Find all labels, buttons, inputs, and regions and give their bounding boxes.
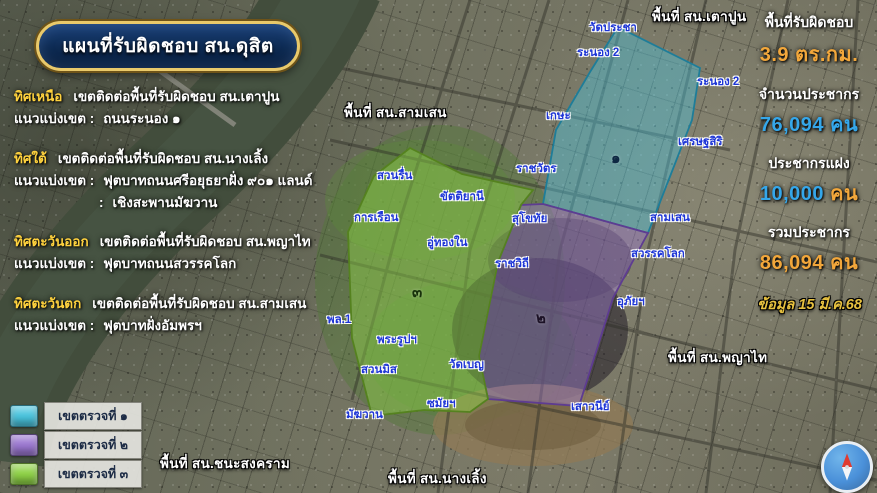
info-block-south: ทิศใต้เขตติดต่อพื้นที่รับผิดชอบ สน.นางเล… [14,148,312,214]
boundary-value: ฟุตบาทถนนศรีอยุธยาฝั่ง ๙๐๑ แลนด์ [103,173,312,188]
legend-label-3: เขตตรวจที่ ๓ [44,460,142,488]
direction-desc: เขตติดต่อพื้นที่รับผิดชอบ สน.เตาปูน [73,89,279,104]
direction-label: ทิศตะวันออก [14,234,89,249]
stat-unit: คน [824,183,858,205]
legend-row-1: เขตตรวจที่ ๑ [10,404,142,428]
direction-label: ทิศใต้ [14,151,47,166]
legend-label-2: เขตตรวจที่ ๒ [44,431,142,459]
data-date: ข้อมูล 15 มี.ค.68 [734,293,877,316]
stat-value-area: 3.9 ตร.กม. [746,38,872,70]
legend-row-3: เขตตรวจที่ ๓ [10,462,142,486]
info-block-east: ทิศตะวันออกเขตติดต่อพื้นที่รับผิดชอบ สน.… [14,231,311,275]
legend-label-1: เขตตรวจที่ ๑ [44,402,142,430]
boundary-label-2: : [14,192,104,214]
legend-row-2: เขตตรวจที่ ๒ [10,433,142,457]
boundary-label: แนวแบ่งเขต : [14,256,94,271]
title-banner: แผนที่รับผิดชอบ สน.ดุสิต [36,21,300,71]
boundary-value: ฟุตบาทฝั่งอัมพรฯ [103,318,202,333]
info-block-west: ทิศตะวันตกเขตติดต่อพื้นที่รับผิดชอบ สน.ส… [14,293,306,337]
direction-desc: เขตติดต่อพื้นที่รับผิดชอบ สน.พญาไท [100,234,311,249]
patrol-zone-1 [543,27,700,233]
boundary-label: แนวแบ่งเขต : [14,173,94,188]
compass-needle-icon [830,450,864,484]
boundary-value-2: เชิงสะพานมัฆวาน [113,195,218,210]
legend-swatch-1 [10,405,38,427]
stat-label-population: จำนวนประชากร [746,84,872,106]
direction-desc: เขตติดต่อพื้นที่รับผิดชอบ สน.นางเลิ้ง [58,151,268,166]
direction-desc: เขตติดต่อพื้นที่รับผิดชอบ สน.สามเสน [92,296,306,311]
stat-value-hidden-population: 10,000 คน [746,177,872,209]
page-title: แผนที่รับผิดชอบ สน.ดุสิต [62,31,273,61]
stat-number: 10,000 [760,183,824,205]
stat-value-total-population: 86,094 คน [746,246,872,278]
compass-icon [821,441,873,493]
legend-swatch-3 [10,463,38,485]
direction-label: ทิศตะวันตก [14,296,81,311]
stat-label-area: พื้นที่รับผิดชอบ [746,12,872,34]
direction-label: ทิศเหนือ [14,89,62,104]
stat-label-total-population: รวมประชากร [746,222,872,244]
boundary-label: แนวแบ่งเขต : [14,111,94,126]
boundary-label: แนวแบ่งเขต : [14,318,94,333]
boundary-value: ถนนระนอง ๑ [103,111,180,126]
stat-value-population: 76,094 คน [746,108,872,140]
stats-panel: พื้นที่รับผิดชอบ 3.9 ตร.กม. จำนวนประชากร… [746,0,872,340]
legend-swatch-2 [10,434,38,456]
boundary-value: ฟุตบาทถนนสวรรคโลก [103,256,236,271]
stat-label-hidden-population: ประชากรแฝง [746,153,872,175]
dusit-police-map-slide: พื้นที่ สน.เตาปูนพื้นที่ สน.สามเสนพื้นที… [0,0,877,493]
legend: เขตตรวจที่ ๑เขตตรวจที่ ๒เขตตรวจที่ ๓ [10,404,142,491]
info-block-north: ทิศเหนือเขตติดต่อพื้นที่รับผิดชอบ สน.เตา… [14,86,279,130]
